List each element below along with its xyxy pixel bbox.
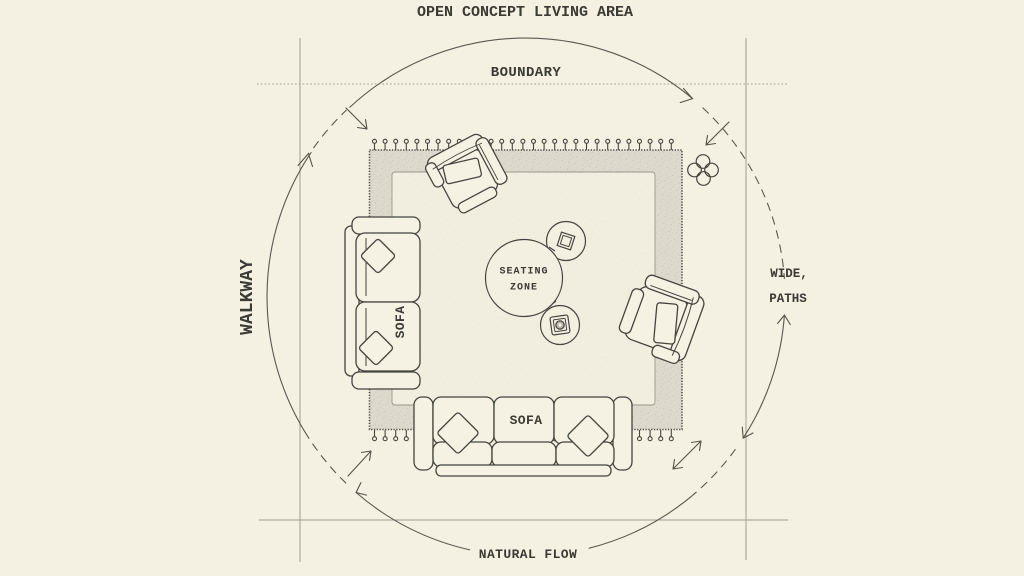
svg-text:SOFA: SOFA: [510, 413, 543, 428]
svg-text:BOUNDARY: BOUNDARY: [491, 65, 562, 81]
svg-text:SOFA: SOFA: [393, 306, 408, 339]
svg-text:OPEN CONCEPT LIVING AREA: OPEN CONCEPT LIVING AREA: [417, 4, 633, 21]
svg-text:SEATING: SEATING: [499, 267, 548, 278]
svg-text:WALKWAY: WALKWAY: [238, 259, 258, 335]
svg-text:PATHS: PATHS: [769, 292, 807, 306]
svg-text:WIDE,: WIDE,: [770, 267, 808, 281]
svg-text:ZONE: ZONE: [510, 283, 538, 294]
svg-text:NATURAL FLOW: NATURAL FLOW: [479, 547, 577, 562]
